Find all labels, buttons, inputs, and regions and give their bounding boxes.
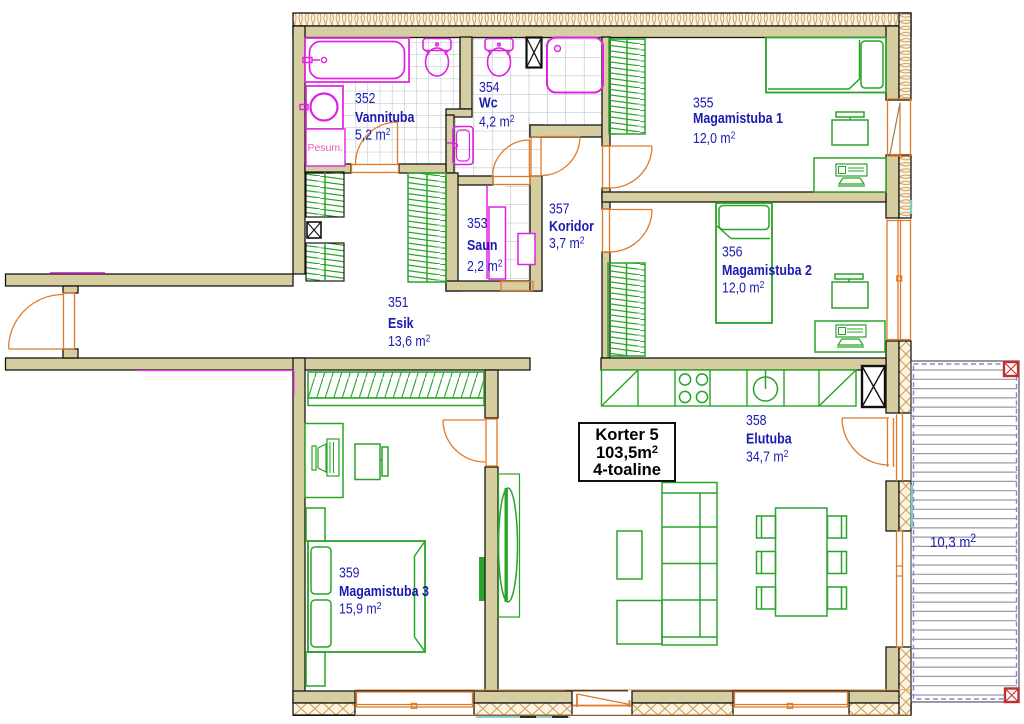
svg-text:Magamistuba 1: Magamistuba 1 [693,109,783,126]
svg-text:3,7 m2: 3,7 m2 [549,235,585,252]
svg-text:Pesum.: Pesum. [308,142,344,154]
svg-text:13,6 m2: 13,6 m2 [388,333,430,350]
svg-text:5,2 m2: 5,2 m2 [355,126,391,143]
svg-text:Koridor: Koridor [549,217,594,234]
svg-text:Magamistuba 2: Magamistuba 2 [722,261,812,278]
svg-text:12,0 m2: 12,0 m2 [722,279,764,296]
svg-text:12,0 m2: 12,0 m2 [693,130,735,147]
svg-text:15,9 m2: 15,9 m2 [339,600,381,617]
svg-text:351: 351 [388,294,409,310]
svg-text:34,7 m2: 34,7 m2 [746,448,788,465]
svg-text:Korter 5: Korter 5 [595,426,658,444]
svg-text:10,3 m2: 10,3 m2 [930,532,976,550]
svg-text:353: 353 [467,215,488,231]
svg-text:4-toaline: 4-toaline [593,461,661,479]
svg-text:Saun: Saun [467,236,497,253]
svg-text:356: 356 [722,243,743,259]
svg-text:358: 358 [746,412,767,428]
svg-text:352: 352 [355,90,376,106]
svg-text:2,2 m2: 2,2 m2 [467,258,503,275]
svg-text:Esik: Esik [388,314,414,331]
svg-text:Vannituba: Vannituba [355,108,415,125]
svg-text:4,2 m2: 4,2 m2 [479,113,515,130]
svg-text:359: 359 [339,564,360,580]
svg-text:Magamistuba 3: Magamistuba 3 [339,582,429,599]
svg-text:Wc: Wc [479,93,498,110]
svg-text:103,5m2: 103,5m2 [596,444,658,462]
svg-text:Elutuba: Elutuba [746,429,792,446]
svg-text:357: 357 [549,200,570,216]
